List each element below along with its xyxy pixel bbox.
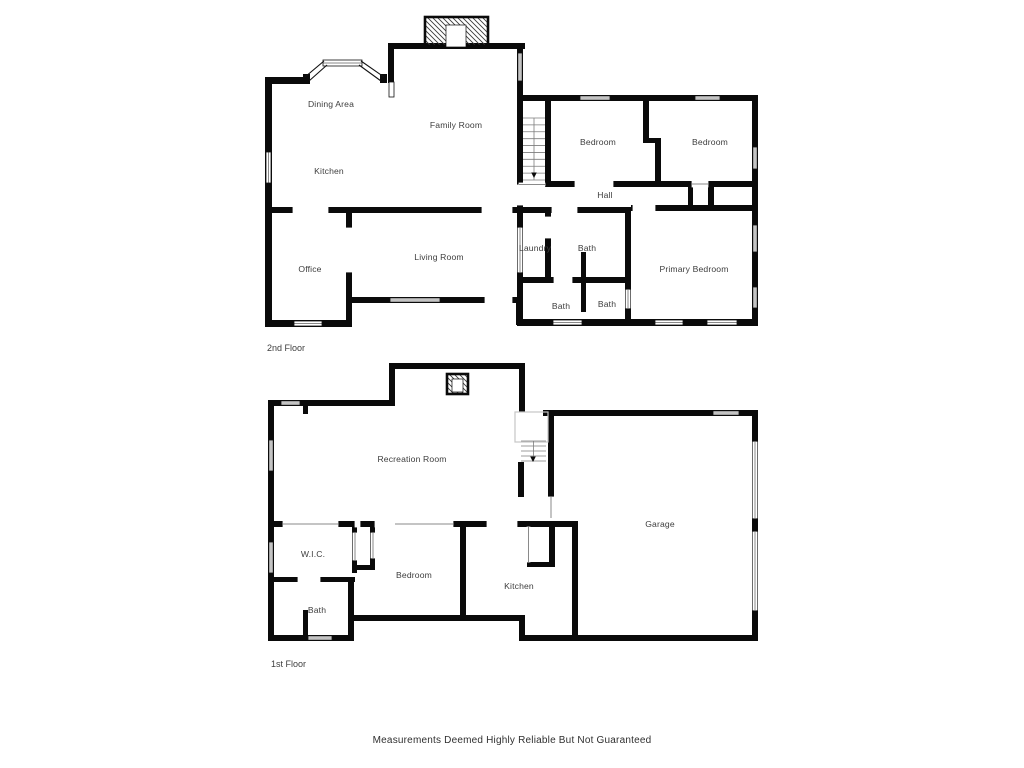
door-opening [554, 277, 573, 284]
room-label-w-i-c: W.I.C. [301, 549, 325, 559]
wall [688, 186, 693, 206]
wall [545, 181, 692, 187]
wall [581, 252, 586, 312]
door-opening [346, 228, 353, 273]
room-label-bath: Bath [598, 299, 616, 309]
wall [545, 95, 551, 185]
floorplan-page: Dining AreaFamily RoomKitchenBedroomBedr… [0, 0, 1024, 768]
room-label-living-room: Living Room [414, 252, 463, 262]
wall [519, 363, 525, 412]
floor-label-1st-floor: 1st Floor [271, 659, 306, 669]
wall [655, 143, 661, 185]
wall [643, 95, 649, 141]
floor-label-2nd-floor: 2nd Floor [267, 343, 305, 353]
room-label-bedroom: Bedroom [396, 570, 432, 580]
wall [348, 577, 354, 641]
bay-window-line [305, 61, 324, 77]
room-label-bedroom: Bedroom [692, 137, 728, 147]
door-opening [575, 181, 614, 188]
wall [265, 77, 272, 325]
wall [572, 521, 578, 641]
door-opening [482, 207, 513, 214]
room-label-family-room: Family Room [430, 120, 482, 130]
door-opening [355, 521, 361, 528]
room-label-bath: Bath [308, 605, 326, 615]
floor-2nd-floor: Dining AreaFamily RoomKitchenBedroomBedr… [265, 17, 758, 353]
room-label-recreation-room: Recreation Room [377, 454, 446, 464]
wall [460, 521, 466, 621]
floor-1st-floor: Recreation RoomGarageW.I.C.BedroomKitche… [268, 363, 758, 669]
wall [389, 363, 395, 406]
wall [303, 400, 308, 414]
door-opening [633, 205, 656, 212]
wall [352, 565, 375, 570]
room-label-laundry: Laundry [519, 243, 552, 253]
floorplan-drawing: Dining AreaFamily RoomKitchenBedroomBedr… [0, 0, 1024, 768]
door-opening [293, 207, 329, 214]
door-opening [545, 217, 552, 239]
door-opening [485, 297, 513, 304]
door-opening [375, 521, 396, 528]
wall [516, 297, 523, 325]
wall [549, 521, 555, 567]
door-opening [298, 577, 321, 583]
wall [519, 635, 758, 641]
stair-direction-arrow [531, 173, 537, 179]
room-label-garage: Garage [645, 519, 675, 529]
wall [643, 138, 661, 143]
door-opening [487, 521, 518, 528]
disclaimer-text: Measurements Deemed Highly Reliable But … [0, 735, 1024, 746]
room-label-bath: Bath [552, 301, 570, 311]
window [389, 82, 394, 97]
floor-above-outline [515, 412, 548, 442]
door-opening [517, 185, 524, 206]
wall [389, 363, 525, 369]
staircase [521, 441, 546, 462]
wall [518, 462, 524, 497]
room-label-bath: Bath [578, 243, 596, 253]
room-label-office: Office [298, 264, 321, 274]
wall [268, 400, 274, 641]
chimney-firebox [446, 25, 466, 47]
room-label-hall: Hall [597, 190, 612, 200]
wall [517, 95, 758, 101]
bay-window-line [309, 65, 327, 81]
wall [348, 615, 525, 621]
wall [527, 562, 555, 567]
wall [548, 410, 554, 497]
room-label-primary-bedroom: Primary Bedroom [659, 264, 728, 274]
wall [714, 181, 752, 187]
chimney-firebox [452, 379, 463, 392]
room-label-kitchen: Kitchen [504, 581, 534, 591]
room-label-bedroom: Bedroom [580, 137, 616, 147]
wall [517, 277, 631, 283]
door-opening [552, 207, 578, 214]
room-label-dining-area: Dining Area [308, 99, 354, 109]
staircase [523, 118, 545, 180]
room-label-kitchen: Kitchen [314, 166, 344, 176]
